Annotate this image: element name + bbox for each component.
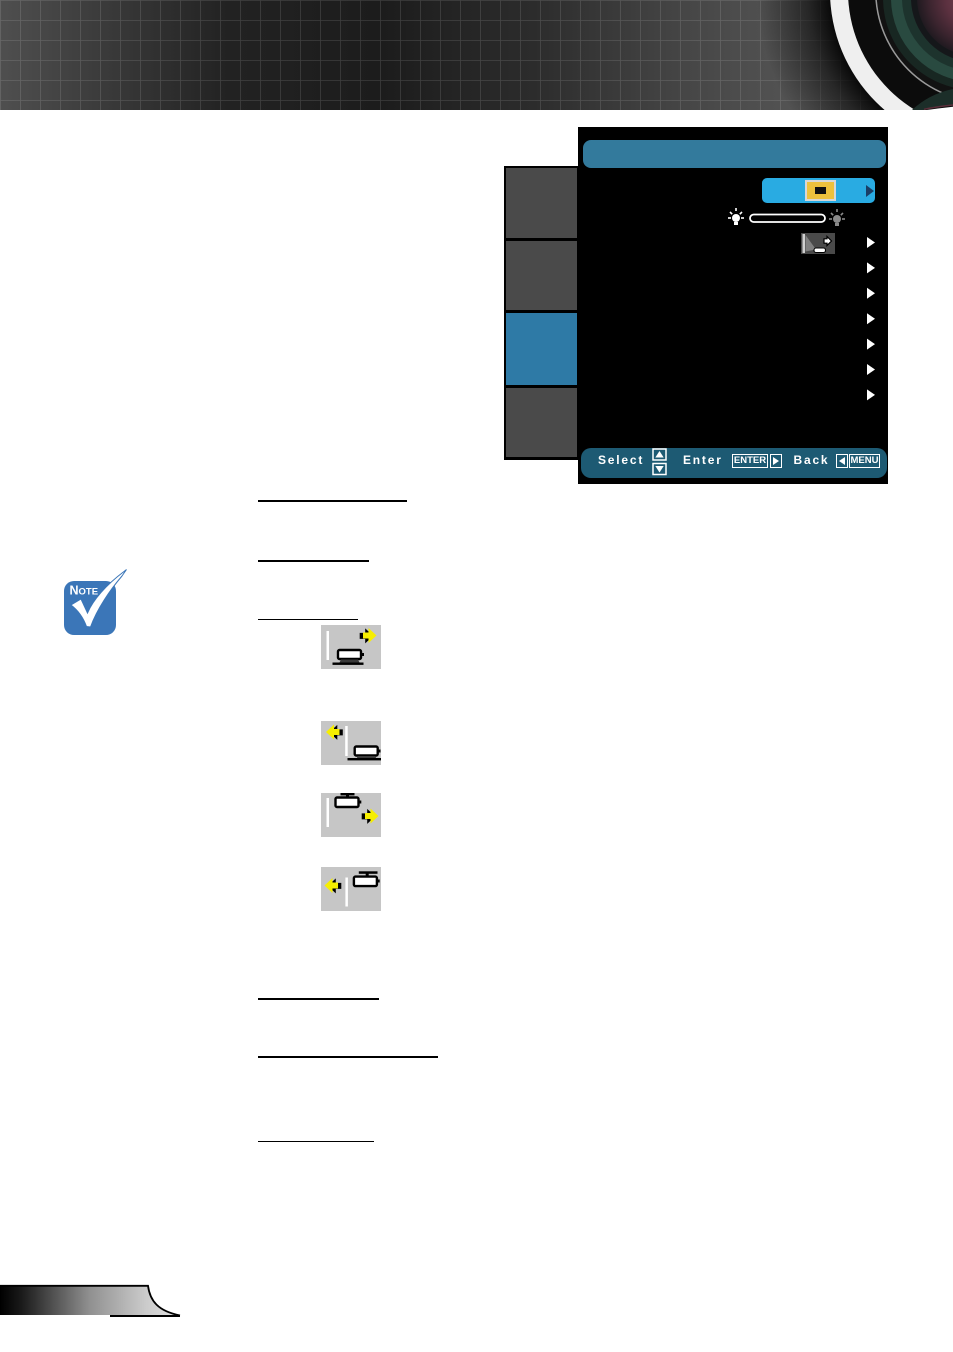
svg-text:NOTE: NOTE [70, 584, 99, 598]
